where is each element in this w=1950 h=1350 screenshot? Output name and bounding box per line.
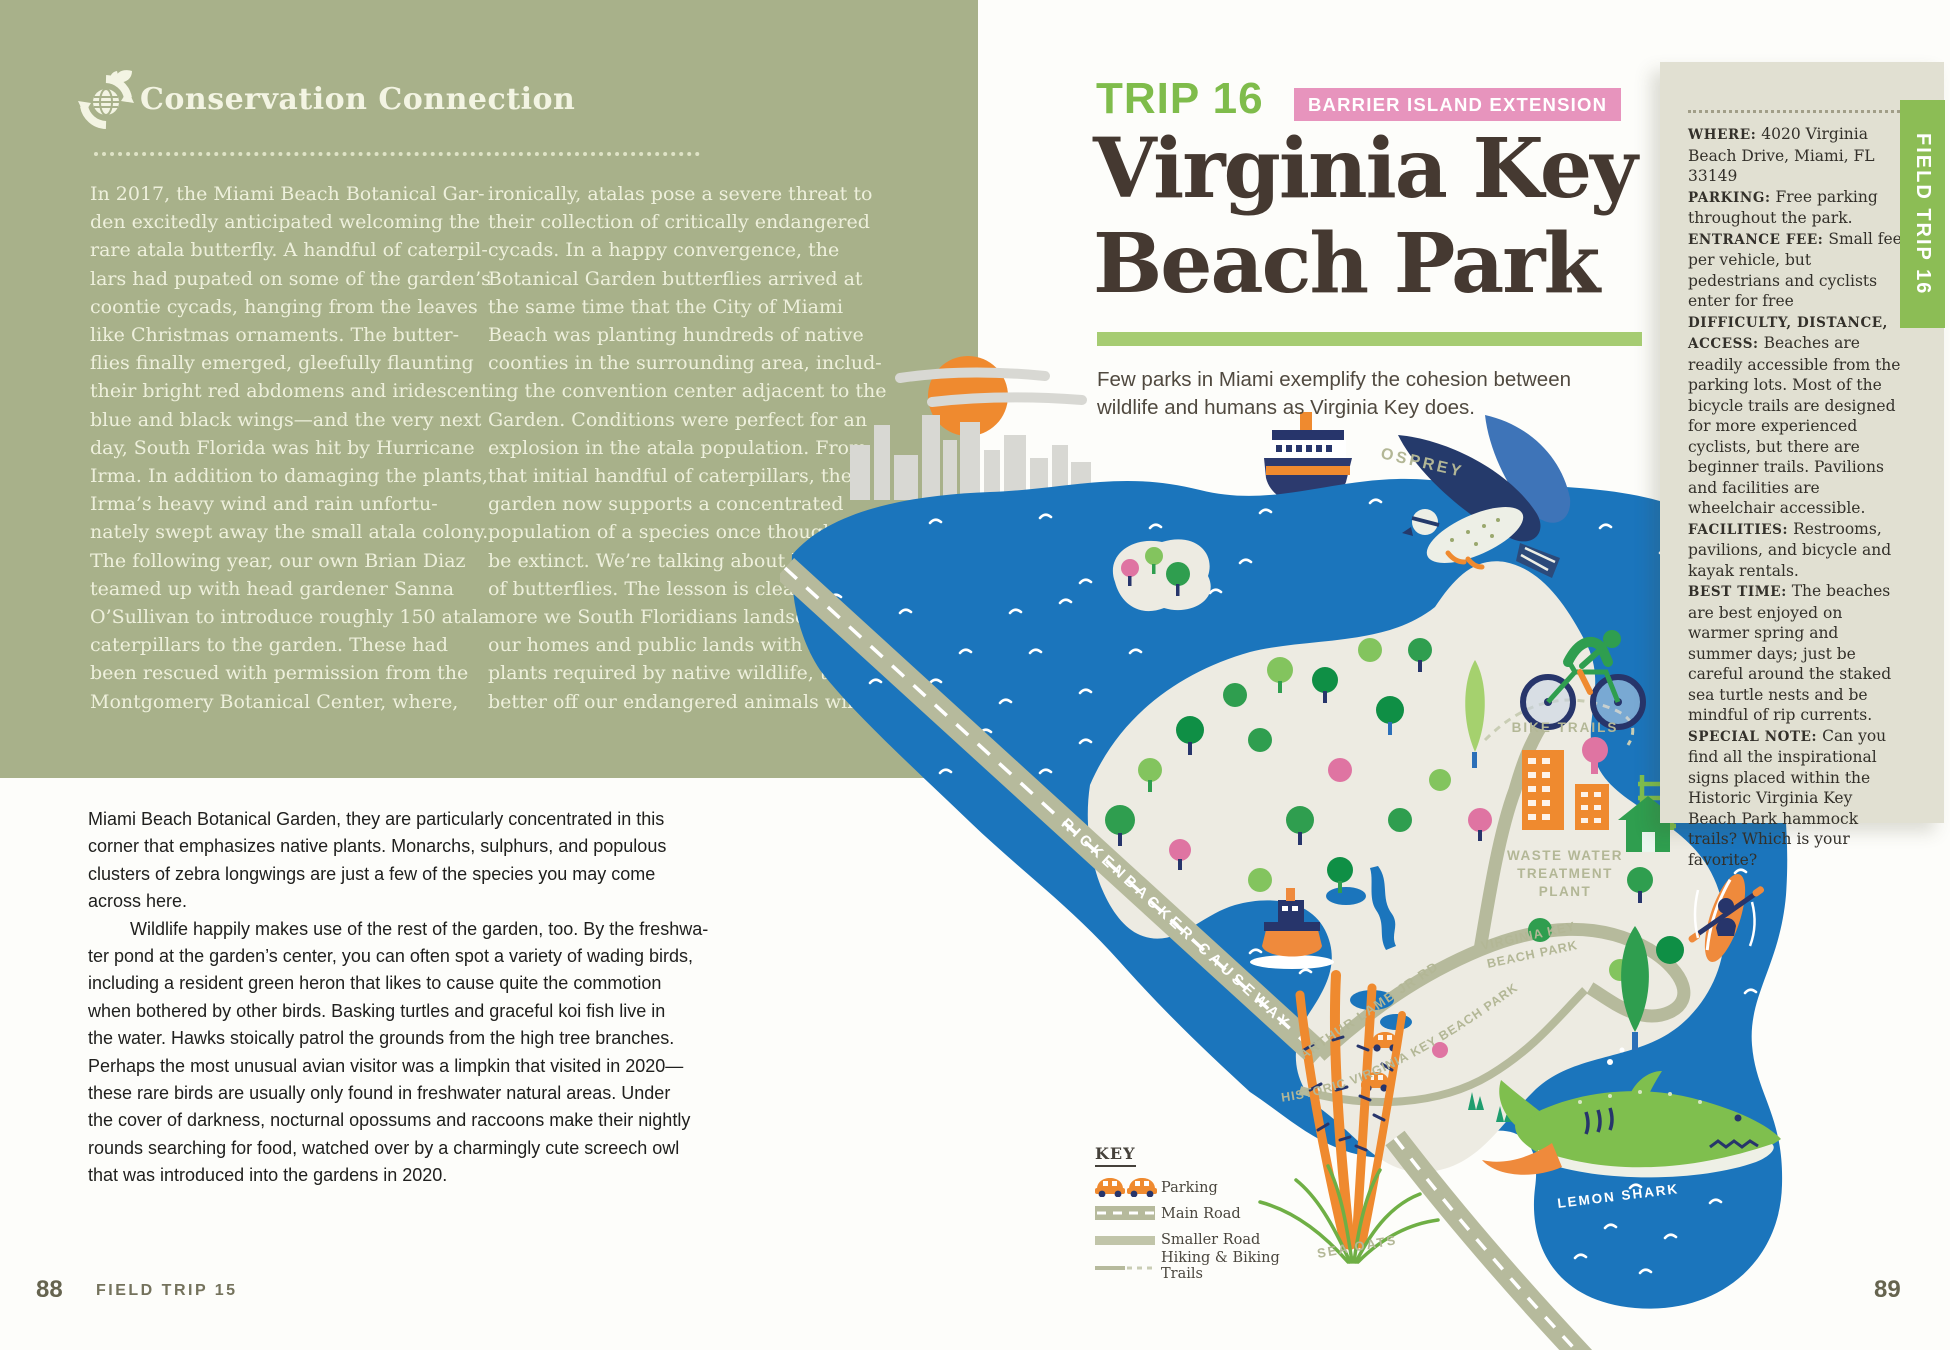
waste-water-label-1: WASTE WATER: [1507, 848, 1623, 863]
barrier-island-badge: BARRIER ISLAND EXTENSION: [1294, 88, 1621, 121]
sidebar-label: PARKING:: [1688, 190, 1771, 206]
legend-label: Main Road: [1161, 1206, 1241, 1222]
page-number-left: 88: [36, 1276, 63, 1304]
sidebar-label: WHERE:: [1688, 127, 1756, 143]
sidebar-dotted-divider: [1688, 110, 1900, 113]
sidebar-label: FACILITIES:: [1688, 522, 1788, 538]
page-subtitle: Few parks in Miami exemplify the cohesio…: [1097, 366, 1571, 422]
sidebar-text: Can you find all the inspirational signs…: [1688, 727, 1886, 869]
sidebar-text: Beaches are readily accessible from the …: [1688, 334, 1900, 517]
sidebar-label: SPECIAL NOTE:: [1688, 729, 1817, 745]
sidebar-label: ENTRANCE FEE:: [1688, 232, 1823, 248]
field-trip-tab: FIELD TRIP 16: [1900, 100, 1945, 328]
parking-cars-icon: [1095, 1175, 1161, 1201]
globe-recycle-leaves-icon: [74, 70, 138, 134]
waste-water-label-3: PLANT: [1539, 884, 1592, 899]
sidebar-item-special-note: SPECIAL NOTE: Can you find all the inspi…: [1688, 726, 1902, 871]
garden-body-text: Miami Beach Botanical Garden, they are p…: [88, 806, 788, 1190]
sidebar-item-where: WHERE: 4020 Virginia Beach Drive, Miami,…: [1688, 124, 1902, 187]
sidebar-item-entrance-fee: ENTRANCE FEE: Small fee per vehicle, but…: [1688, 229, 1902, 312]
conservation-title: Conservation Connection: [140, 82, 575, 117]
sidebar-item-facilities: FACILITIES: Restrooms, pavilions, and bi…: [1688, 519, 1902, 582]
body-paragraph-1: Miami Beach Botanical Garden, they are p…: [88, 806, 788, 916]
trip-number-label: TRIP 16: [1096, 74, 1264, 124]
page-title: Virginia Key Beach Park: [1093, 122, 1636, 312]
waste-water-label-2: TREATMENT: [1517, 866, 1613, 881]
sidebar-body: WHERE: 4020 Virginia Beach Drive, Miami,…: [1688, 124, 1902, 870]
map-key-legend: KEY Parki: [1095, 1144, 1315, 1279]
running-footer-left: FIELD TRIP 15: [96, 1282, 238, 1300]
title-underline-bar: [1097, 332, 1642, 346]
legend-row-main-road: Main Road: [1095, 1201, 1315, 1227]
legend-label: Hiking & Biking Trails: [1161, 1250, 1315, 1282]
legend-label: Smaller Road: [1161, 1232, 1260, 1248]
book-spread: Conservation Connection In 2017, the Mia…: [0, 0, 1950, 1350]
conservation-column-1: In 2017, the Miami Beach Botanical Gar- …: [90, 180, 520, 716]
bike-trails-label: BIKE TRAILS: [1512, 720, 1619, 735]
sidebar-item-best-time: BEST TIME: The beaches are best enjoyed …: [1688, 581, 1902, 726]
legend-row-trails: Hiking & Biking Trails: [1095, 1253, 1315, 1279]
legend-label: Parking: [1161, 1180, 1218, 1196]
sidebar-item-parking: PARKING: Free parking throughout the par…: [1688, 187, 1902, 229]
legend-title: KEY: [1095, 1144, 1136, 1167]
main-road-icon: [1095, 1205, 1161, 1224]
sidebar-text: The beaches are best enjoyed on warmer s…: [1688, 582, 1891, 724]
page-number-right: 89: [1874, 1276, 1901, 1304]
trails-icon: [1095, 1257, 1161, 1276]
sidebar-item-difficulty: DIFFICULTY, DISTANCE, ACCESS: Beaches ar…: [1688, 312, 1902, 519]
legend-row-parking: Parking: [1095, 1175, 1315, 1201]
smaller-road-icon: [1095, 1231, 1161, 1250]
dotted-divider: [94, 152, 700, 156]
sidebar-label: BEST TIME:: [1688, 584, 1787, 600]
body-paragraph-2: Wildlife happily makes use of the rest o…: [88, 916, 788, 1190]
